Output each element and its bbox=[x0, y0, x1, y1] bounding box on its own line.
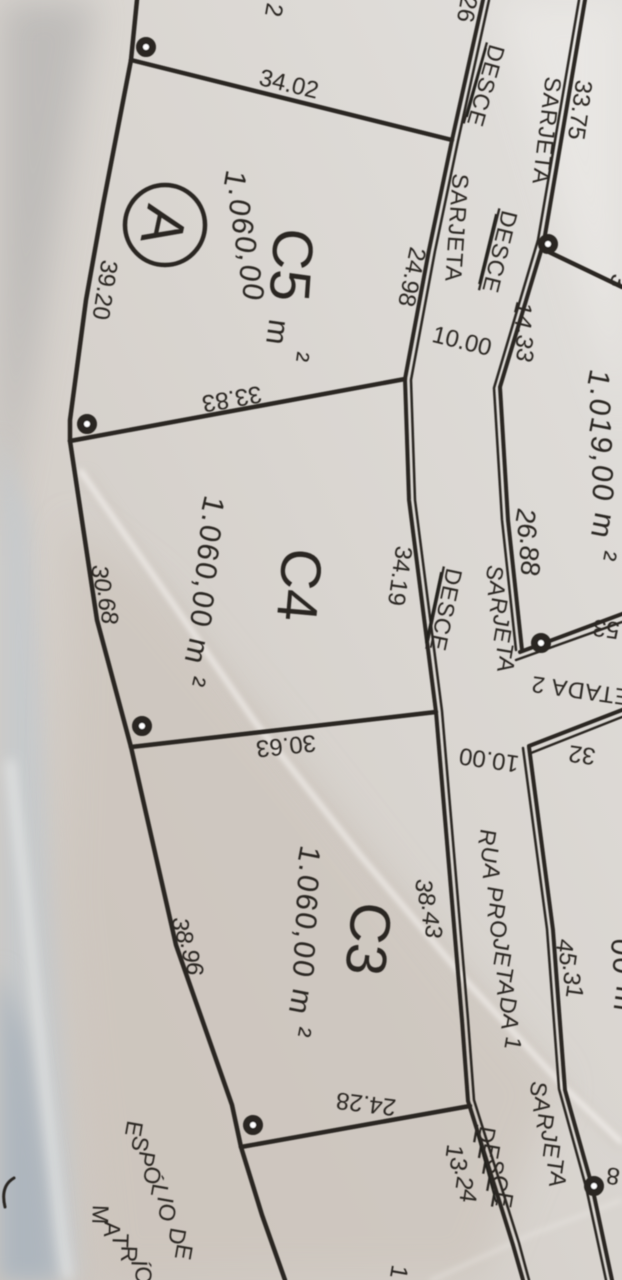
svg-text:C3: C3 bbox=[332, 899, 403, 978]
svg-text:C4: C4 bbox=[264, 546, 334, 624]
svg-text:32: 32 bbox=[567, 739, 597, 769]
svg-text:53: 53 bbox=[591, 613, 621, 643]
svg-text:14.33: 14.33 bbox=[507, 298, 539, 366]
